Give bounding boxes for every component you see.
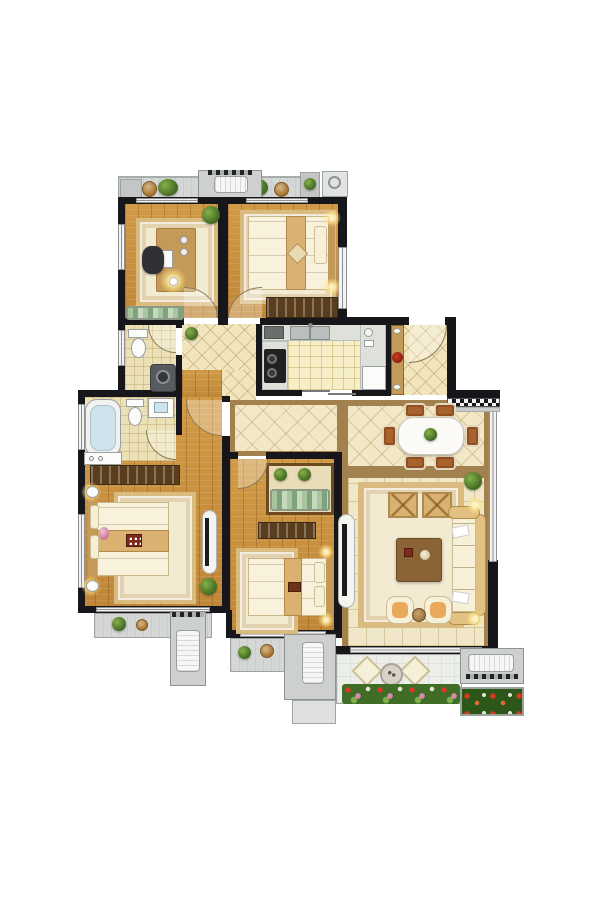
dining-chair [382, 425, 397, 447]
hall-floor [230, 400, 342, 456]
top-ac-platform-grate [208, 170, 252, 175]
window-study-top [136, 198, 198, 203]
kitchen-appliance [364, 340, 374, 347]
dining-chair [434, 455, 456, 470]
window-bedroom2-right [338, 247, 347, 309]
wall-rooms-bottom-right [260, 318, 350, 325]
study-lamp [169, 277, 178, 286]
window-masterbath-left [78, 404, 85, 450]
dining-chair [465, 425, 480, 447]
window-bedroom2-top [246, 198, 308, 203]
wall-masterbath-right [176, 397, 182, 435]
bedroom3-headboard [326, 558, 333, 616]
master-pillow [90, 505, 99, 529]
dining-chair [434, 403, 456, 418]
ac-platform-right-grate [466, 674, 518, 679]
master-plant [200, 578, 217, 595]
bedroom2-pillow [314, 226, 327, 264]
coffee-table-tray [404, 548, 413, 557]
living-wall-lamp [466, 496, 484, 514]
kitchen-faucet [308, 323, 313, 328]
bedroom3-pillow [314, 586, 325, 607]
window-study-left [118, 224, 125, 270]
master-toilet-tank [126, 399, 144, 407]
guest-toilet-tank [128, 329, 148, 338]
wall-kitchen-right [386, 324, 391, 394]
wall-guestbath-right [176, 355, 182, 397]
dining-chair [404, 403, 426, 418]
bedroom3-pillow [314, 562, 325, 583]
wall-right-lower [488, 560, 498, 652]
dining-chair [404, 455, 426, 470]
master-toilet-bowl [128, 407, 142, 426]
ac-platform-left-grate [172, 612, 204, 617]
bedroom2-wall-lamp [323, 209, 341, 227]
ac-unit-left [176, 630, 200, 672]
washing-machine-drum [156, 370, 170, 384]
shoe-cabinet-bowl [393, 384, 401, 390]
vestibule-floor [182, 370, 222, 398]
dining-plant [464, 472, 482, 490]
wall-master-right [222, 436, 230, 610]
living-armchair-seat [392, 602, 408, 618]
master-bed-decor [126, 534, 142, 547]
coffee-table [396, 538, 442, 582]
vent-circle [328, 176, 341, 189]
wall-bedroom2-right-bottom [338, 309, 347, 325]
cooktop-burner [267, 368, 277, 378]
wall-master-right-stub [222, 396, 230, 402]
kitchen-tiles [288, 341, 360, 390]
top-ac-unit [214, 176, 248, 193]
platform-step [292, 700, 336, 724]
wall-kitchen-bottom-right [352, 390, 391, 396]
living-side-table [412, 608, 426, 622]
master-pillow [90, 535, 99, 559]
study-office-chair [142, 246, 164, 274]
master-nightstand [86, 486, 99, 498]
master-nightstand [86, 580, 99, 592]
balcony-table-dots [387, 670, 396, 679]
bedroom3-wall-lamp [318, 612, 334, 628]
bedroom3-wardrobe [258, 522, 316, 539]
bath-cabinet-knob [98, 456, 103, 461]
balcony-pot [142, 181, 157, 197]
balcony-flower-border [342, 684, 460, 704]
shoe-cabinet-flowers [392, 352, 403, 363]
kitchen-sink [290, 326, 330, 340]
guest-toilet-bowl [131, 338, 146, 358]
bedroom3-bed-decor [288, 582, 301, 592]
bedroom3-dresser-stripes [270, 489, 330, 511]
flower-bed [460, 687, 524, 716]
master-bed-flowers [99, 527, 109, 540]
study-bench [126, 306, 184, 320]
desk-item [180, 248, 188, 256]
fridge [362, 366, 386, 390]
wall-bedroom3-top-right [266, 452, 338, 459]
living-ottoman [388, 492, 418, 518]
wall-bedroom3-left-lower [226, 610, 232, 632]
bedroom2-wall-lamp [323, 278, 341, 296]
wall-entry-right [447, 317, 456, 397]
wall-kitchen-left [256, 324, 262, 392]
floor-plan [0, 0, 600, 900]
bedroom3-dresser-plant [274, 468, 287, 481]
top-right-box-plant [304, 178, 316, 190]
living-armchair-seat [430, 602, 446, 618]
ac-unit-right [468, 654, 514, 672]
balcony-plant [158, 179, 178, 196]
master-tv [205, 518, 209, 566]
dining-centerpiece [424, 428, 437, 441]
window-master-left [78, 514, 85, 588]
balcony-pot [274, 182, 289, 197]
window-guestbath-left [118, 330, 125, 366]
kitchen-dark-box [264, 326, 284, 339]
study-plant [202, 206, 220, 224]
bedroom3-wall-lamp [318, 544, 334, 560]
kitchen-appliance [364, 328, 373, 337]
window-living-right [489, 404, 497, 562]
bedroom3-balcony-plant [238, 646, 251, 659]
wall-kitchen-bottom-left [256, 390, 302, 396]
wall-kitchen-top [347, 317, 409, 325]
bedroom2-wardrobe [266, 297, 338, 318]
living-wall-lamp [466, 610, 484, 628]
bedroom3-balcony-pot [260, 644, 274, 658]
bathtub-basin [90, 405, 116, 451]
coffee-table-flowers [420, 550, 430, 560]
kitchen-sliding-door [302, 390, 330, 392]
basin [154, 402, 168, 413]
master-balcony-plant [112, 617, 126, 631]
shoe-cabinet-bowl [393, 328, 401, 334]
bath-cabinet-knob [89, 456, 94, 461]
living-tv [342, 524, 347, 596]
cooktop-burner [267, 354, 277, 364]
ac-unit-center [302, 642, 324, 684]
master-wardrobe [90, 465, 180, 485]
desk-item [180, 236, 188, 244]
bedroom3-dresser-plant [298, 468, 311, 481]
wall-guestbath-right-stub [176, 323, 182, 328]
corridor-plant [185, 327, 198, 340]
master-balcony-pot [136, 619, 148, 631]
kitchen-sliding-door [328, 393, 356, 395]
